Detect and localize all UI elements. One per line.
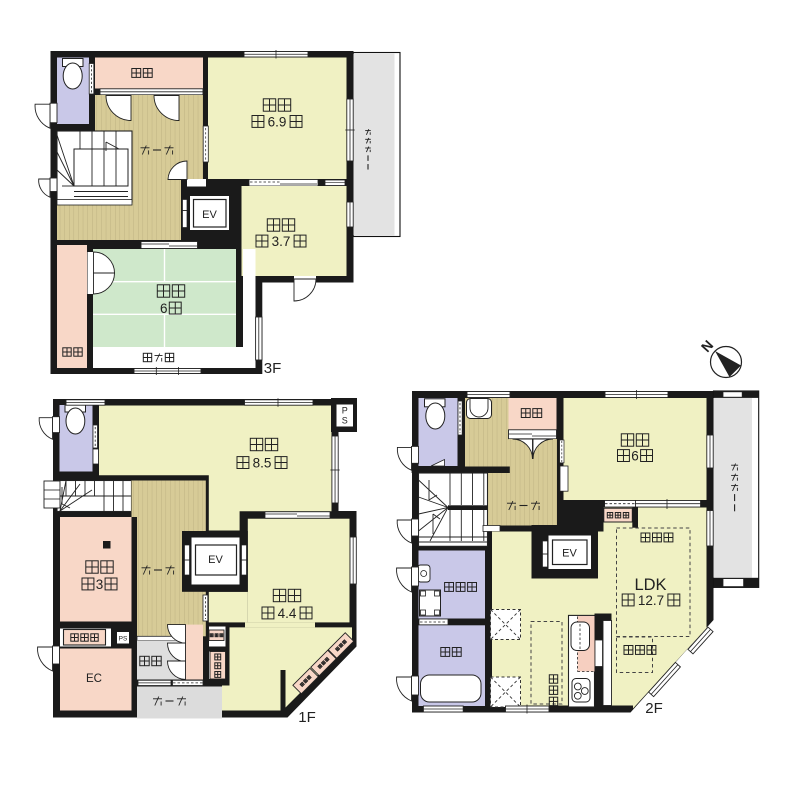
svg-text:EV: EV xyxy=(202,209,217,221)
svg-text:3F: 3F xyxy=(264,360,282,377)
svg-text:P: P xyxy=(342,406,348,416)
svg-text:PS: PS xyxy=(119,636,128,643)
svg-text:2F: 2F xyxy=(645,700,663,717)
svg-text:EC: EC xyxy=(86,673,102,685)
svg-text:EV: EV xyxy=(562,548,577,560)
svg-text:S: S xyxy=(342,416,348,426)
svg-text:4.4: 4.4 xyxy=(278,606,297,621)
svg-text:8.5: 8.5 xyxy=(253,455,272,470)
svg-text:3.7: 3.7 xyxy=(272,234,291,249)
svg-text:6: 6 xyxy=(160,301,168,316)
svg-text:LDK: LDK xyxy=(634,576,666,594)
svg-text:1F: 1F xyxy=(298,709,316,726)
svg-text:3: 3 xyxy=(96,577,104,592)
svg-text:6: 6 xyxy=(631,448,639,463)
svg-text:6.9: 6.9 xyxy=(268,114,287,129)
svg-text:EV: EV xyxy=(208,554,223,566)
svg-text:12.7: 12.7 xyxy=(638,593,664,608)
